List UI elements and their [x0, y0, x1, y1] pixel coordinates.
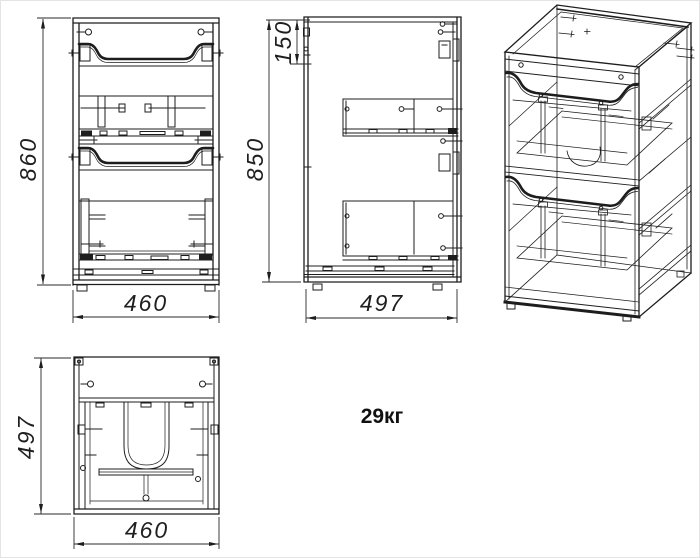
- weight-label: 29кг: [331, 405, 433, 431]
- side-view: 150 850 497: [241, 1, 471, 336]
- front-view-linework: [69, 18, 223, 291]
- top-view-dimensions: 497 460: [13, 358, 219, 549]
- top-view: 497 460: [1, 341, 251, 558]
- isometric-linework: [505, 5, 694, 321]
- front-width-dimension: 460: [124, 290, 168, 316]
- top-depth-dimension: 497: [13, 415, 39, 459]
- front-view: 860 460: [1, 1, 241, 336]
- isometric-view: [491, 1, 700, 341]
- top-width-dimension: 460: [125, 517, 169, 543]
- front-height-dimension: 860: [15, 137, 41, 181]
- side-height-dimension: 850: [242, 137, 268, 181]
- side-top-offset-dimension: 150: [270, 20, 296, 64]
- side-view-linework: [304, 17, 463, 290]
- top-view-linework: [74, 357, 219, 514]
- drawing-canvas: 860 460: [0, 0, 700, 558]
- side-depth-dimension: 497: [360, 290, 404, 316]
